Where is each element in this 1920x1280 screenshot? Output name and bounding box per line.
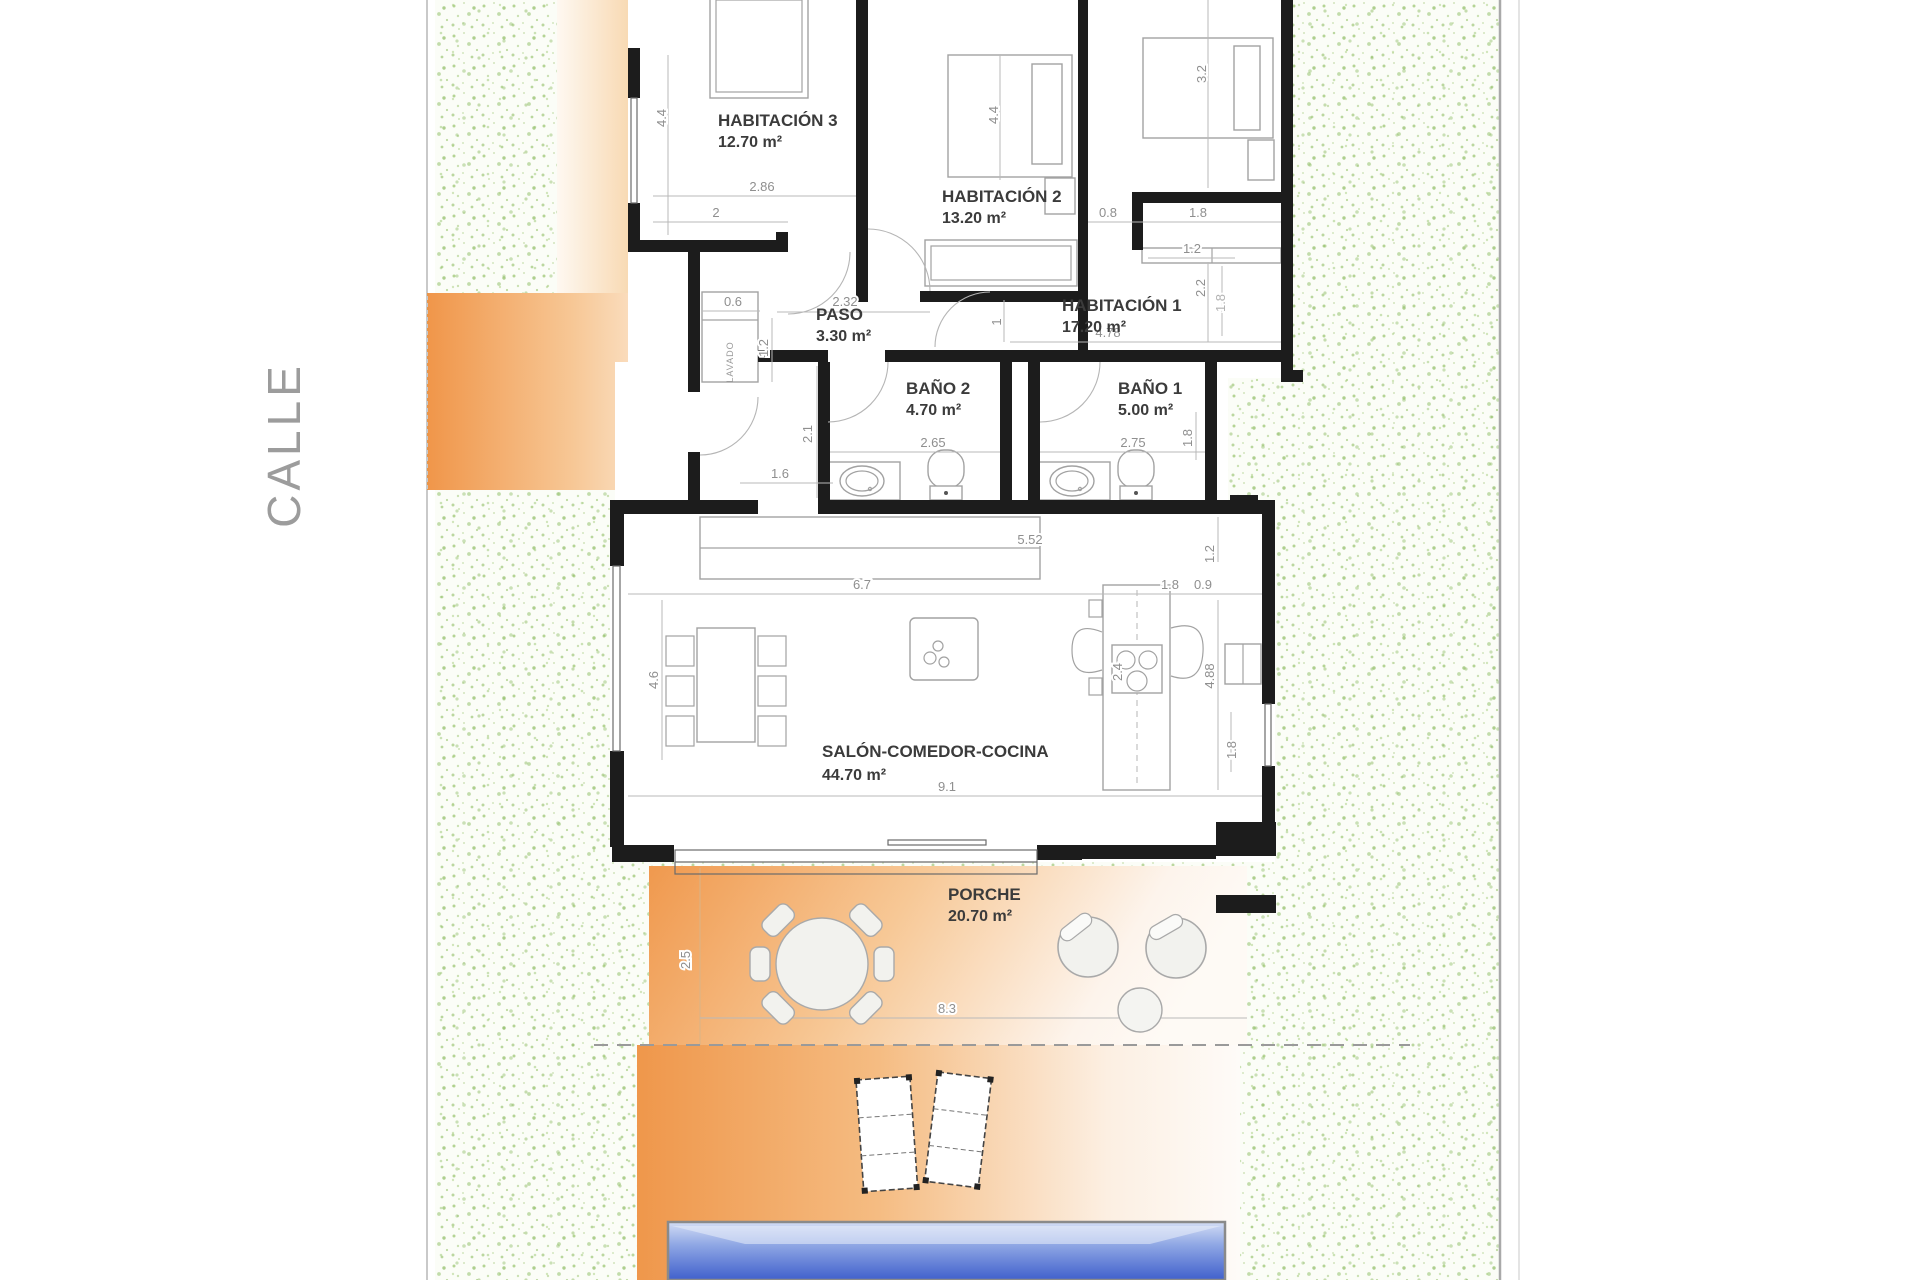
room-name: SALÓN-COMEDOR-COCINA [822, 742, 1049, 761]
dim: 6.7 [853, 577, 871, 592]
room-name: PASO [816, 305, 863, 324]
dim: 1.6 [771, 466, 789, 481]
room-name: HABITACIÓN 2 [942, 187, 1062, 206]
room-area: 5.00 m² [1118, 402, 1173, 419]
dim: 0.8 [1099, 205, 1117, 220]
dim: 1.8 [1189, 205, 1207, 220]
dim: 2.75 [1120, 435, 1145, 450]
swimming-pool [668, 1222, 1225, 1280]
room-name: BAÑO 1 [1118, 378, 1182, 398]
room-name: BAÑO 2 [906, 378, 970, 398]
dim: 1.2 [1183, 241, 1201, 256]
room-name: HABITACIÓN 3 [718, 111, 838, 130]
dim: 2.65 [920, 435, 945, 450]
sunbed-1 [854, 1074, 920, 1194]
dim: 2.86 [749, 179, 774, 194]
room-area: 3.30 m² [816, 328, 871, 345]
room-area: 44.70 m² [822, 767, 886, 784]
dim: 1.8 [1180, 429, 1195, 447]
dim: 1.8 [1224, 741, 1239, 759]
dim: 1.8 [1213, 294, 1228, 312]
dim: 8.3 [938, 1001, 956, 1016]
dim: 1.2 [756, 339, 771, 357]
wardrobe-hab1 [1142, 248, 1281, 263]
room-area: 13.20 m² [942, 210, 1006, 227]
dim: 2.1 [800, 425, 815, 443]
dim: 1 [989, 318, 1004, 325]
side-path [557, 0, 630, 296]
floor-plan-drawing: CALLE [0, 0, 1920, 1280]
kitchen-sideboard [700, 517, 1040, 579]
laundry-closet-label: LAVADO [725, 341, 735, 382]
dim: 9.1 [938, 779, 956, 794]
dim: 2.2 [1193, 279, 1208, 297]
wardrobe-hab2 [925, 240, 1077, 286]
street-label: CALLE [258, 362, 310, 528]
dim: 0.9 [1194, 577, 1212, 592]
room-area: 20.70 m² [948, 908, 1012, 925]
dim: 2.4 [1110, 663, 1125, 681]
dim: 2.5 [678, 951, 693, 969]
room-area: 12.70 m² [718, 134, 782, 151]
side-table [1118, 988, 1162, 1032]
dim: 2 [712, 205, 719, 220]
bed-hab3 [710, 0, 808, 98]
room-name: PORCHE [948, 885, 1021, 904]
dim: 1.8 [1161, 577, 1179, 592]
coffee-table [910, 618, 978, 680]
dim: 4.88 [1202, 663, 1217, 688]
dim: 3.2 [1194, 65, 1209, 83]
fridge [1225, 644, 1261, 684]
dim: 4.4 [986, 106, 1001, 124]
street-area: CALLE [258, 0, 427, 1280]
dim: 1.2 [1202, 545, 1217, 563]
dim: 0.6 [724, 294, 742, 309]
room-area: 17.20 m² [1062, 319, 1126, 336]
dim: 4.4 [654, 109, 669, 127]
room-area: 4.70 m² [906, 402, 961, 419]
room-name: HABITACIÓN 1 [1062, 296, 1182, 315]
dim: 4.6 [646, 671, 661, 689]
dim: 5.52 [1017, 532, 1042, 547]
floor-plan-page: CALLE [0, 0, 1920, 1280]
